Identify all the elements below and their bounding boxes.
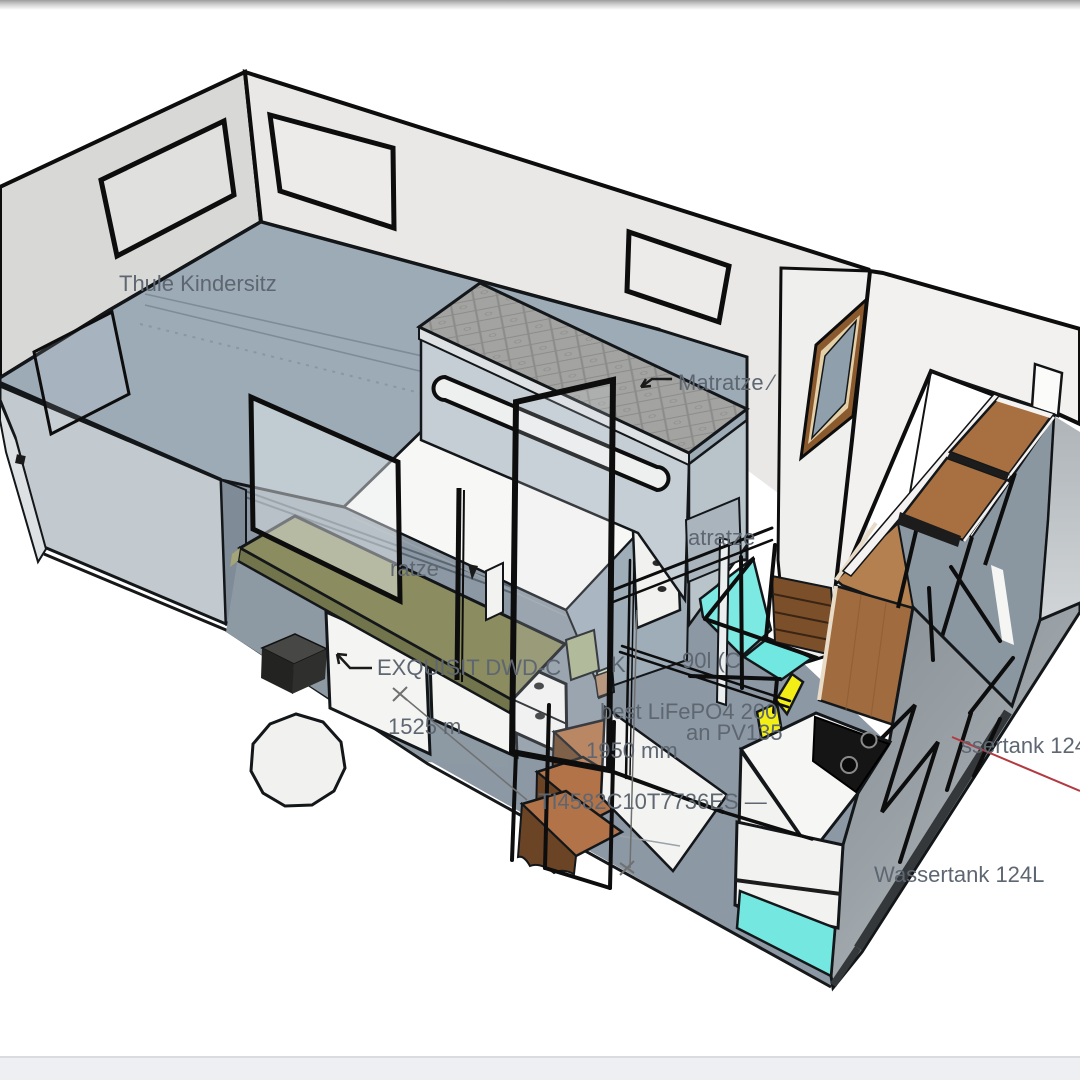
svg-text:atratze: atratze	[688, 525, 755, 550]
svg-text:ssertank 124: ssertank 124	[961, 733, 1080, 758]
svg-text:TI4582C10T7736ES —: TI4582C10T7736ES —	[538, 789, 767, 814]
svg-text:EXQUISIT DWD-C: EXQUISIT DWD-C	[377, 655, 561, 680]
svg-text:1525 m: 1525 m	[388, 714, 461, 739]
svg-text:Matratze ⁄: Matratze ⁄	[678, 370, 777, 395]
svg-text:Wassertank 124L: Wassertank 124L	[874, 862, 1044, 887]
svg-text:1950 mm: 1950 mm	[586, 738, 678, 763]
svg-text:K: K	[611, 652, 626, 677]
svg-text:90l (C: 90l (C	[682, 648, 741, 673]
svg-text:an PV135: an PV135	[686, 720, 783, 745]
svg-text:ratze: ratze	[390, 556, 439, 581]
svg-text:Thule Kindersitz: Thule Kindersitz	[119, 271, 277, 296]
